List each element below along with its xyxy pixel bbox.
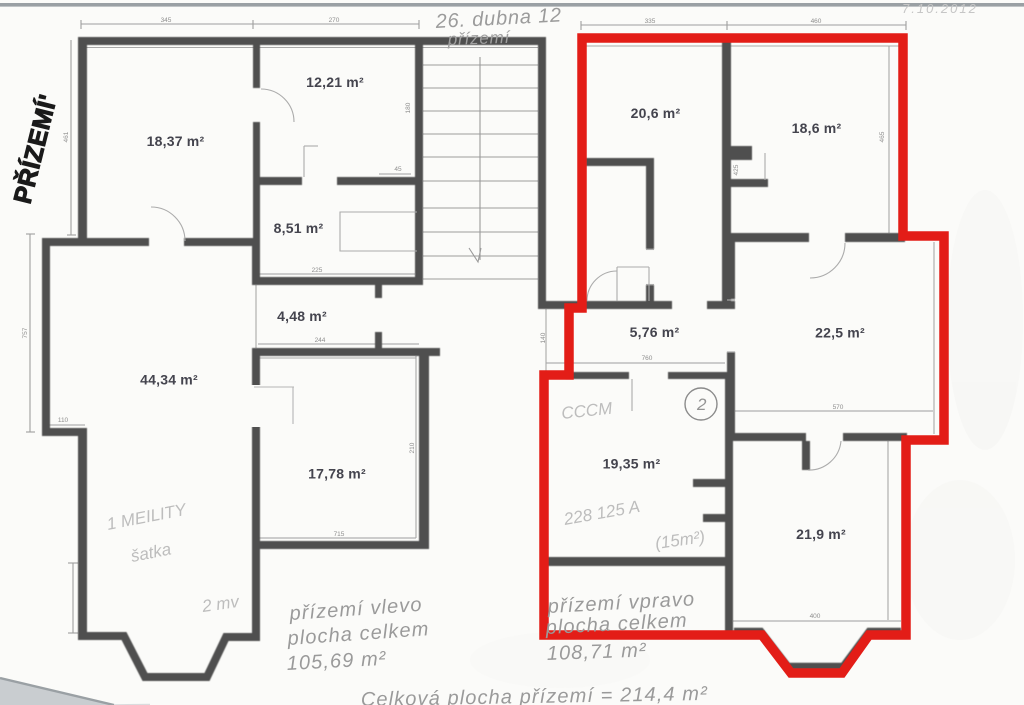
- svg-text:5,76 m²: 5,76 m²: [630, 324, 680, 340]
- svg-text:4,48 m²: 4,48 m²: [277, 308, 327, 324]
- svg-text:7.10.2012: 7.10.2012: [902, 1, 978, 16]
- svg-text:19,35 m²: 19,35 m²: [603, 456, 661, 472]
- svg-text:760: 760: [642, 355, 653, 362]
- svg-text:425: 425: [733, 164, 740, 175]
- svg-text:180: 180: [405, 102, 412, 113]
- svg-text:210: 210: [409, 442, 416, 453]
- svg-text:2: 2: [696, 395, 707, 414]
- svg-text:460: 460: [811, 18, 822, 25]
- svg-text:140: 140: [540, 332, 547, 343]
- svg-text:přízemí: přízemí: [446, 28, 511, 49]
- svg-text:335: 335: [645, 18, 656, 25]
- svg-text:20,6 m²: 20,6 m²: [631, 105, 681, 121]
- svg-text:17,78 m²: 17,78 m²: [308, 466, 366, 482]
- svg-text:110: 110: [58, 417, 69, 424]
- svg-text:715: 715: [334, 531, 345, 538]
- svg-text:225: 225: [312, 267, 323, 274]
- svg-text:465: 465: [879, 131, 886, 142]
- svg-text:21,9 m²: 21,9 m²: [796, 526, 846, 542]
- svg-text:461: 461: [63, 131, 70, 142]
- svg-text:44,34 m²: 44,34 m²: [140, 372, 198, 388]
- svg-text:18,37 m²: 18,37 m²: [147, 133, 205, 149]
- svg-text:244: 244: [315, 337, 326, 344]
- svg-text:757: 757: [22, 327, 29, 338]
- svg-text:12,21 m²: 12,21 m²: [306, 74, 364, 90]
- svg-text:45: 45: [394, 166, 402, 173]
- svg-text:345: 345: [161, 17, 172, 24]
- svg-text:400: 400: [810, 613, 821, 620]
- svg-text:8,51 m²: 8,51 m²: [274, 220, 324, 236]
- svg-text:570: 570: [833, 404, 844, 411]
- svg-text:22,5 m²: 22,5 m²: [815, 325, 865, 341]
- svg-text:108,71 m²: 108,71 m²: [546, 640, 647, 665]
- svg-text:18,6 m²: 18,6 m²: [792, 120, 842, 136]
- svg-text:270: 270: [329, 17, 340, 24]
